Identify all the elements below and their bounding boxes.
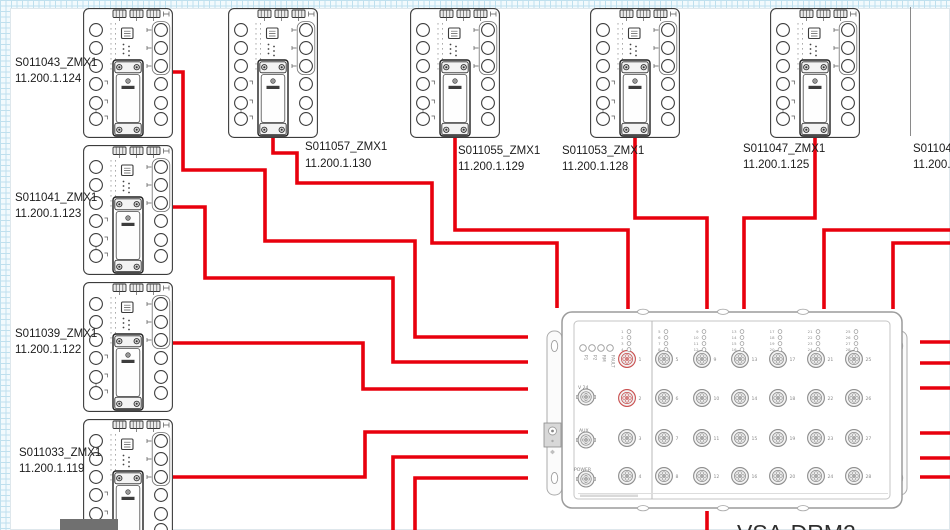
port-led-number: 27 [846,341,851,346]
port-led [816,348,820,352]
led-label: P1 [583,355,589,361]
port-led [664,336,668,340]
port-led-number: 11 [694,341,699,346]
hub-port-8[interactable] [656,468,673,485]
device-module-s011053[interactable] [591,9,680,138]
port-number-label: 10 [714,396,720,402]
port-led-number: 22 [808,335,813,340]
port-number-label: 1 [639,357,642,363]
device-module-s011055[interactable] [411,9,500,138]
port-led-number: 24 [808,347,813,352]
port-number-label: 26 [866,396,872,402]
port-number-label: 16 [752,474,758,480]
device-module-s011039[interactable] [84,283,173,412]
port-led-number: 28 [846,347,851,352]
port-number-label: 14 [752,396,758,402]
hub-port-7[interactable] [656,430,673,447]
port-led-number: 15 [732,341,737,346]
device-ip[interactable]: 11.200.1.128 [562,161,628,173]
port-led-number: 16 [732,347,737,352]
port-number-label: 4 [639,474,642,480]
device-ip[interactable]: 11.200.1 [913,159,950,171]
port-number-label: 6 [676,396,679,402]
hub-port-25[interactable] [846,351,863,368]
port-number-label: 13 [752,357,758,363]
hub-port-21[interactable] [808,351,825,368]
hub-port-3[interactable] [619,430,636,447]
hub-port-22[interactable] [808,390,825,407]
hub-port-4[interactable] [619,468,636,485]
port-led [816,330,820,334]
bracket-hole [551,472,557,483]
port-number-label: 25 [866,357,872,363]
led-p1 [580,345,587,352]
hub-port-27[interactable] [846,430,863,447]
cad-drawing-viewport[interactable]: S011043_ZMX1 11.200.1.124 S011041_ZMX1 1… [0,0,950,530]
port-led [740,348,744,352]
port-led-number: 10 [694,335,699,340]
hscroll-thumb[interactable] [60,519,118,530]
port-led [664,330,668,334]
port-led-number: 20 [770,347,775,352]
device-module-s011047[interactable] [771,9,860,138]
port-number-label: 12 [714,474,720,480]
port-led [664,342,668,346]
port-led [816,342,820,346]
hub-port-14[interactable] [732,390,749,407]
port-number-label: 2 [639,396,642,402]
port-led [702,336,706,340]
hub-port-15[interactable] [732,430,749,447]
port-led-number: 17 [770,329,775,334]
led-rm [598,345,605,352]
port-led [627,348,631,352]
hub-port-24[interactable] [808,468,825,485]
port-led [816,336,820,340]
port-led [740,330,744,334]
port-number-label: 7 [676,436,679,442]
hub-port-9[interactable] [694,351,711,368]
port-led [702,342,706,346]
port-number-label: 27 [866,436,872,442]
hub-bracket-left [547,331,562,495]
hub-port-18[interactable] [770,390,787,407]
device-module-s011057[interactable] [229,9,318,138]
device-ip[interactable]: 11.200.1.123 [15,208,81,220]
led-label: RM [601,355,607,362]
led-label: FAULT [610,355,616,368]
device-ip[interactable]: 11.200.1.125 [743,159,809,171]
port-led-number: 23 [808,341,813,346]
hub-port-11[interactable] [694,430,711,447]
port-number-label: 18 [790,396,796,402]
port-number-label: 15 [752,436,758,442]
device-label[interactable]: S011055_ZMX1 [458,145,540,157]
device-ip[interactable]: 11.200.1.129 [458,161,524,173]
port-led-number: 19 [770,341,775,346]
port-led [627,342,631,346]
bracket-hole [551,340,557,351]
hub-port-20[interactable] [770,468,787,485]
port-number-label: 17 [790,357,796,363]
hub-port-13[interactable] [732,351,749,368]
port-number-label: 5 [676,357,679,363]
port-led-number: 12 [694,347,699,352]
port-number-label: 3 [639,436,642,442]
hub-port-26[interactable] [846,390,863,407]
port-led [664,348,668,352]
device-label[interactable]: S011057_ZMX1 [305,141,387,153]
device-ip[interactable]: 11.200.1.122 [15,344,81,356]
port-led [627,336,631,340]
hub-port-12[interactable] [694,468,711,485]
port-number-label: 21 [828,357,834,363]
hub-port-19[interactable] [770,430,787,447]
port-led [854,336,858,340]
port-led [778,348,782,352]
hub-port-17[interactable] [770,351,787,368]
port-led-number: 18 [770,335,775,340]
hub-port-5[interactable] [656,351,673,368]
port-led-number: 14 [732,335,737,340]
port-number-label: 28 [866,474,872,480]
port-led [627,330,631,334]
wiring-diagram-canvas[interactable]: S011043_ZMX1 11.200.1.124 S011041_ZMX1 1… [0,0,950,530]
port-led [854,342,858,346]
hub-port-1[interactable] [619,351,636,368]
port-led [702,330,706,334]
hub-port-6[interactable] [656,390,673,407]
port-number-label: 23 [828,436,834,442]
port-number-label: 22 [828,396,834,402]
device-module-s011041[interactable] [84,146,173,275]
port-led [740,342,744,346]
port-number-label: 19 [790,436,796,442]
device-label[interactable]: S011047_ZMX1 [743,143,825,155]
hub-port-10[interactable] [694,390,711,407]
port-led [778,330,782,334]
port-number-label: 24 [828,474,834,480]
port-led-number: 21 [808,329,813,334]
port-led [854,348,858,352]
port-led [778,336,782,340]
device-ip[interactable]: 11.200.1.119 [19,463,84,475]
device-label[interactable]: S011033_ZMX1 [19,447,101,459]
port-led [702,348,706,352]
led-label: P2 [592,355,598,361]
led-p2 [589,345,596,352]
port-number-label: 8 [676,474,679,480]
device-module-s011043[interactable] [84,9,173,138]
device-label[interactable]: S011049 [913,143,950,155]
hub-port-2[interactable] [619,390,636,407]
port-led [854,330,858,334]
device-ip[interactable]: 11.200.1.124 [15,73,82,85]
device-label[interactable]: S011039_ZMX1 [15,328,97,340]
port-number-label: 9 [714,357,717,363]
hub-port-23[interactable] [808,430,825,447]
hub-device[interactable]: P1 P2 RM FAULT V 24 AUX POWER 1122334455… [544,309,907,511]
device-ip[interactable]: 11.200.1.130 [305,158,371,170]
port-led [778,342,782,346]
hub-port-16[interactable] [732,468,749,485]
hub-port-28[interactable] [846,468,863,485]
port-number-label: 11 [714,436,720,442]
device-module-s011033[interactable] [84,420,173,530]
port-led [740,336,744,340]
device-label[interactable]: S011043_ZMX1 [15,57,97,69]
port-led-number: 26 [846,335,851,340]
device-label[interactable]: S011053_ZMX1 [562,145,644,157]
device-label[interactable]: S011041_ZMX1 [15,192,97,204]
led-fault [607,345,614,352]
port-led-number: 25 [846,329,851,334]
port-led-number: 13 [732,329,737,334]
hub-name-label[interactable]: VSA-DRM2 [737,520,856,530]
port-number-label: 20 [790,474,796,480]
